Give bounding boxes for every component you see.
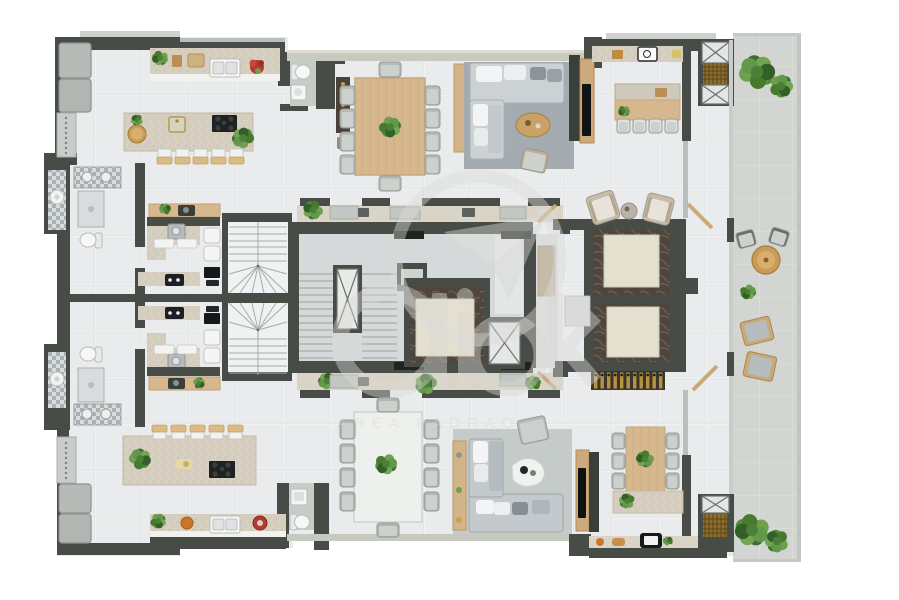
svg-text:AREA PADRAO: AREA PADRAO xyxy=(337,415,520,432)
